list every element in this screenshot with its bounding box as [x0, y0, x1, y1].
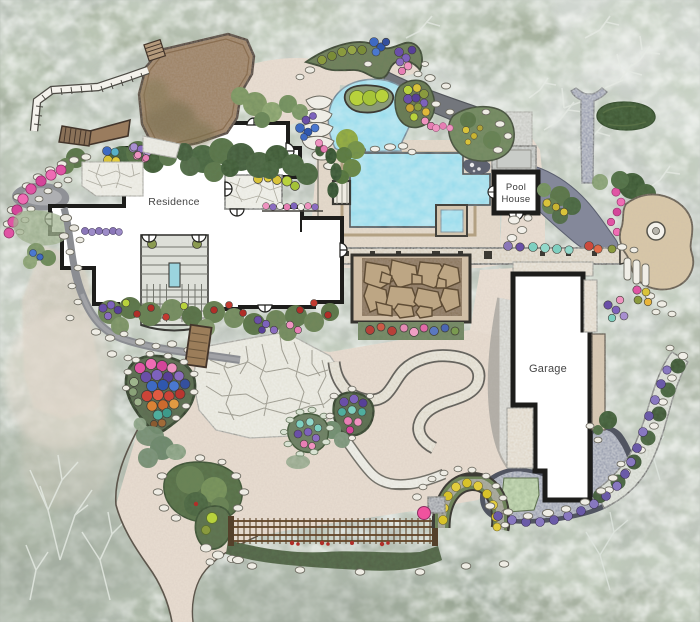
svg-text:Pool: Pool [506, 182, 526, 193]
svg-text:Garage: Garage [529, 363, 567, 375]
svg-text:House: House [502, 194, 531, 205]
svg-text:Residence: Residence [148, 196, 199, 208]
